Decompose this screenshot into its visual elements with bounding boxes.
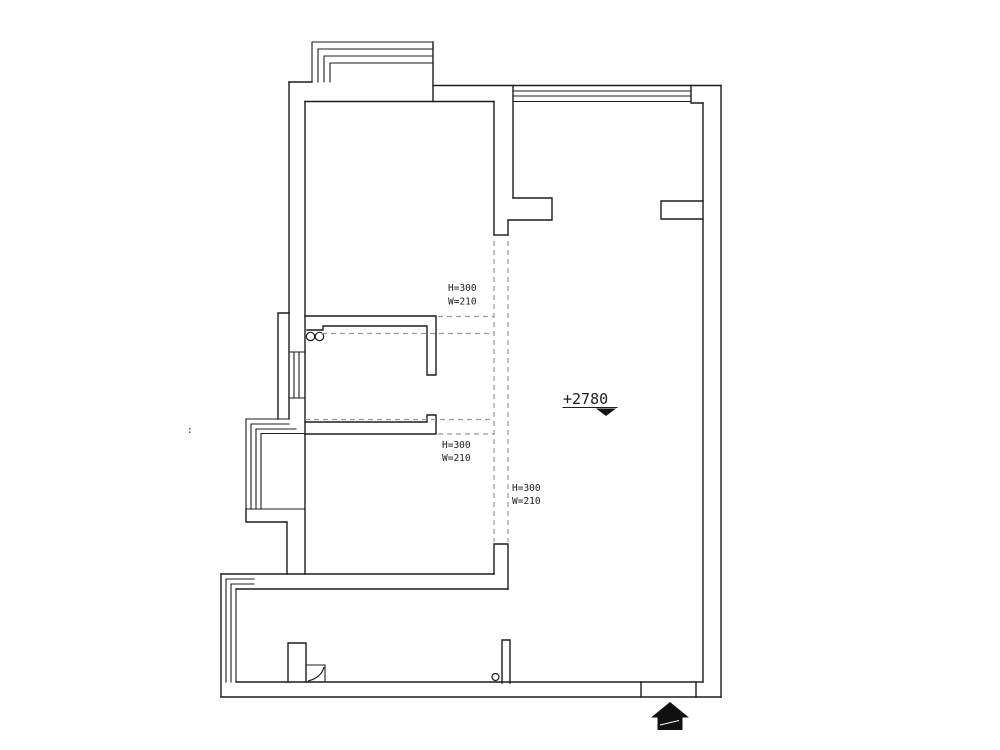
bay-bottom-line-2 <box>226 579 254 682</box>
outer-walls <box>221 42 721 697</box>
beam-annotation-height: H=300 <box>448 283 477 294</box>
pier-left <box>508 198 552 220</box>
level-marker: +2780 <box>563 390 617 416</box>
entry-pillar <box>288 643 306 682</box>
entrance <box>651 702 689 730</box>
partition-wall-a <box>305 316 436 375</box>
beam-annotation-width: W=210 <box>512 496 541 507</box>
bay-top-line-2 <box>318 49 433 82</box>
bay-left-line-3 <box>256 429 296 509</box>
beam-annotation-height: H=300 <box>442 440 471 451</box>
beam-annotation-width: W=210 <box>442 453 471 464</box>
bay-top-line-4 <box>330 63 433 82</box>
mid-wall-nib <box>494 544 508 589</box>
floor-plan-canvas: H=300 W=210 H=300 W=210 H=300 W=210 +278… <box>0 0 1000 750</box>
floor-plan-page: H=300 W=210 H=300 W=210 H=300 W=210 +278… <box>0 0 1000 750</box>
entrance-arrow-icon <box>651 702 689 730</box>
bay-window-bottom <box>226 579 254 682</box>
bay-left-line-2 <box>251 424 289 509</box>
inner-walls <box>221 86 703 698</box>
bay-window-top <box>312 42 433 82</box>
bay-bottom-line-3 <box>231 584 254 682</box>
level-marker-value: +2780 <box>563 390 608 408</box>
bay-top-line-3 <box>324 56 433 82</box>
entry-pillar-and-door <box>288 643 325 682</box>
level-marker-triangle-icon <box>596 409 616 417</box>
window-top-right <box>513 91 691 102</box>
beam-annotation-top: H=300 W=210 <box>448 283 477 308</box>
wall-left-step <box>278 313 289 419</box>
partition-b-outline <box>305 415 436 434</box>
beam-annotation-width: W=210 <box>448 297 477 308</box>
bay-left-line-1 <box>246 419 289 509</box>
partition-wall-b <box>305 415 436 434</box>
partition-a-outline <box>305 316 436 375</box>
door-pivot-circle <box>306 332 314 340</box>
stub-circle <box>492 674 499 681</box>
wall-stub <box>502 640 510 683</box>
beam-annotation-middle: H=300 W=210 <box>442 440 471 464</box>
beam-annotation-right: H=300 W=210 <box>512 483 541 507</box>
colon-mark: : <box>187 425 193 436</box>
bay-window-left <box>246 419 304 509</box>
beam-dashed-lines <box>305 241 508 542</box>
bay-left-line-4 <box>261 434 304 510</box>
pier-right <box>661 201 703 219</box>
window-right-jamb <box>691 86 703 104</box>
beam-annotation-height: H=300 <box>512 483 541 494</box>
entrance-threshold <box>641 682 696 697</box>
wall-stub-bottom <box>492 640 510 683</box>
door-swing-icon <box>308 667 324 681</box>
door-frame <box>306 665 325 682</box>
window-left <box>289 352 305 398</box>
wall-bay-sill-step <box>246 509 287 574</box>
